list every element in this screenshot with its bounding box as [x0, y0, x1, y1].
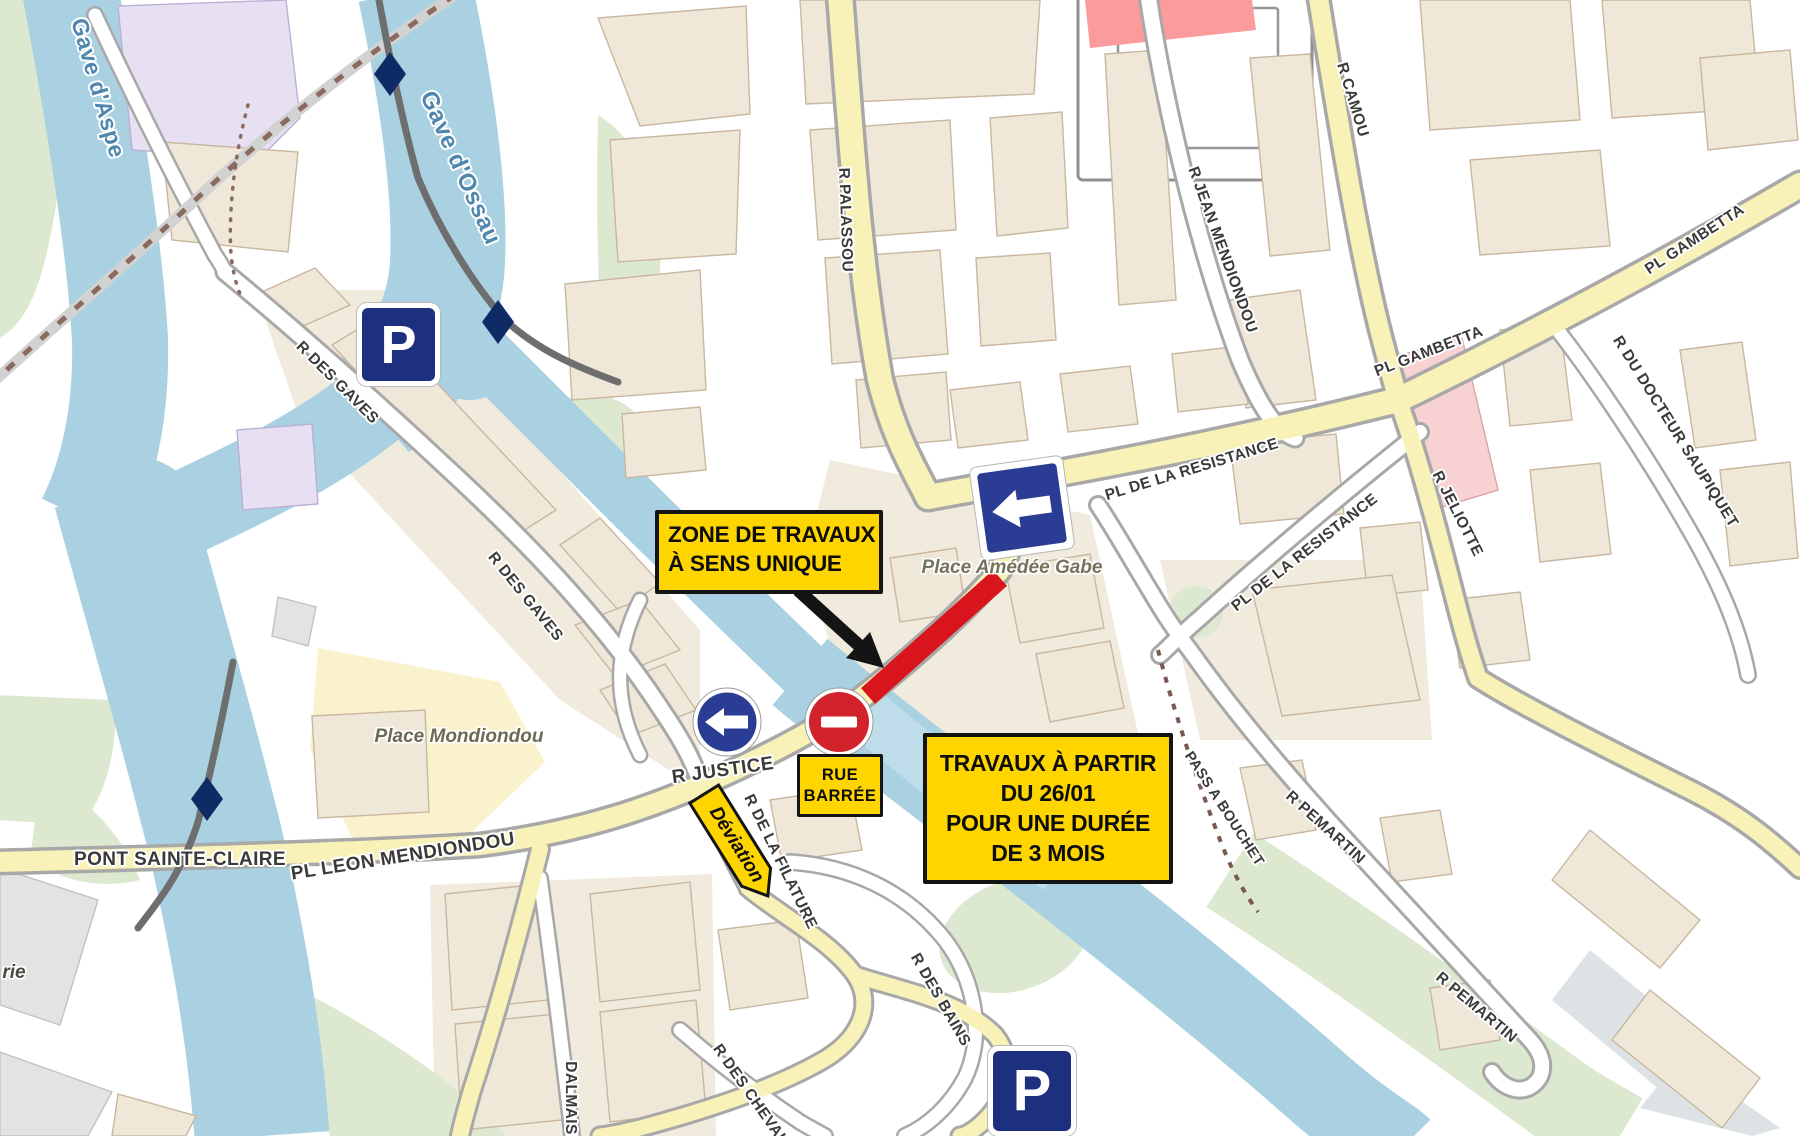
parking-sign-icon: P — [357, 303, 440, 386]
annotation-line: TRAVAUX À PARTIR — [927, 748, 1169, 778]
annotation-line: À SENS UNIQUE — [668, 549, 879, 578]
no-entry-sign — [805, 688, 873, 756]
base-map-graphics — [0, 0, 1800, 1136]
annotation-line: POUR UNE DURÉE — [927, 808, 1169, 838]
annotation-line: DU 26/01 — [927, 778, 1169, 808]
annotation-travaux-dates: TRAVAUX À PARTIR DU 26/01 POUR UNE DURÉE… — [923, 733, 1173, 884]
parking-sign-icon: P — [988, 1046, 1076, 1136]
annotation-line: BARRÉE — [800, 786, 880, 807]
annotation-line: DE 3 MOIS — [927, 838, 1169, 868]
no-entry-bar-icon — [821, 717, 857, 728]
parking-letter: P — [380, 318, 416, 372]
turn-left-circle-sign — [693, 688, 761, 756]
annotation-zone-travaux: ZONE DE TRAVAUX À SENS UNIQUE — [655, 510, 883, 594]
parking-sign-panel: P — [993, 1051, 1071, 1131]
map-canvas: Gave d'Aspe Gave d'Ossau R PALASSOU R JE… — [0, 0, 1800, 1136]
parking-sign-panel: P — [362, 308, 435, 381]
annotation-line: ZONE DE TRAVAUX — [668, 520, 879, 549]
rue-camou-road — [1318, 0, 1398, 400]
annotation-line: RUE — [800, 765, 880, 786]
parking-letter: P — [1013, 1062, 1052, 1120]
one-way-left-square-sign — [969, 455, 1075, 561]
annotation-rue-barree: RUE BARRÉE — [797, 754, 883, 817]
gave-daspe-river — [70, 0, 120, 520]
